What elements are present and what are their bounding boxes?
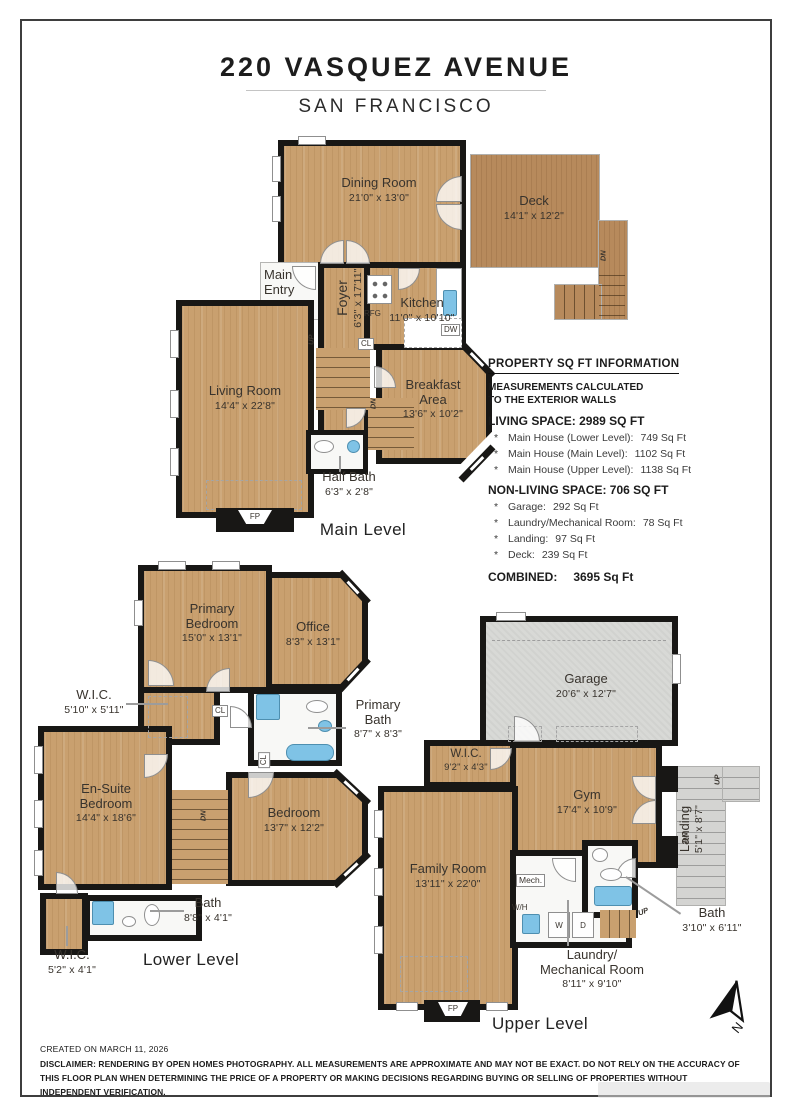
page-subtitle: SAN FRANCISCO: [0, 96, 792, 118]
window: [158, 561, 186, 570]
sink-icon: [122, 916, 136, 927]
bullet: *: [494, 501, 501, 513]
breakfast-label: Breakfast Area 13'6" x 10'2": [392, 378, 474, 421]
page-title: 220 VASQUEZ AVENUE: [0, 52, 792, 83]
deck-stairs-treads: [599, 266, 625, 316]
room-wic-2: [40, 893, 88, 955]
stairs-dn-tag: DN: [682, 832, 690, 843]
sqft-item: *Main House (Lower Level):749 Sq Ft: [488, 432, 766, 444]
item-label: Garage:: [508, 501, 546, 513]
laundry-sink-icon: [522, 914, 540, 934]
item-label: Laundry/Mechanical Room:: [508, 517, 636, 529]
label-leader: [126, 703, 168, 705]
refrigerator-tag: RFG: [364, 310, 381, 318]
window: [396, 1002, 418, 1011]
window: [486, 1002, 508, 1011]
closet-tag: CL: [358, 338, 374, 350]
garage-door-line: [492, 640, 666, 641]
dining-label: Dining Room 21'0" x 13'0": [340, 176, 418, 204]
sqft-item: *Deck:239 Sq Ft: [488, 549, 766, 561]
window: [170, 330, 179, 358]
deck-label: Deck 14'1" x 12'2": [494, 194, 574, 222]
main-entry-label: Main Entry: [258, 268, 316, 297]
sqft-note-2: TO THE EXTERIOR WALLS: [488, 394, 766, 407]
item-value: 78 Sq Ft: [643, 517, 683, 529]
water-heater-tag: W/H: [512, 904, 528, 912]
window: [496, 612, 526, 621]
item-label: Main House (Main Level):: [508, 448, 628, 460]
item-value: 749 Sq Ft: [640, 432, 686, 444]
halfbath-label: Half Bath 6'3" x 2'8": [299, 470, 399, 498]
bullet: *: [494, 549, 501, 561]
garage-outline: [556, 726, 638, 742]
watermark: [598, 1082, 770, 1098]
window: [34, 850, 43, 876]
stairs-dn-tag: DN: [200, 810, 208, 821]
shower-icon: [256, 694, 280, 720]
deck-stairs: [554, 284, 602, 320]
item-label: Deck:: [508, 549, 535, 561]
window: [170, 390, 179, 418]
nonliving-space-title: NON-LIVING SPACE: 706 SQ FT: [488, 483, 766, 497]
rug-outline: [400, 956, 468, 992]
window: [34, 746, 43, 774]
bullet: *: [494, 517, 501, 529]
stairs-lower: [172, 790, 228, 884]
bullet: *: [494, 464, 501, 476]
living-label: Living Room 14'4" x 22'8": [196, 384, 294, 412]
closet-tag: CL: [258, 752, 270, 768]
ensuite-label: En-Suite Bedroom 14'4" x 18'6": [58, 782, 154, 825]
wic3-label: W.I.C. 9'2" x 4'3": [432, 748, 500, 774]
window: [672, 654, 681, 684]
sink-icon: [318, 720, 332, 732]
sqft-header: PROPERTY SQ FT INFORMATION: [488, 358, 679, 374]
living-space-title: LIVING SPACE: 2989 SQ FT: [488, 414, 766, 428]
window: [374, 868, 383, 896]
sqft-item: *Laundry/Mechanical Room:78 Sq Ft: [488, 517, 766, 529]
item-value: 292 Sq Ft: [553, 501, 599, 513]
sqft-item: *Main House (Upper Level):1138 Sq Ft: [488, 464, 766, 476]
stairs-main-up: [316, 348, 370, 410]
primary-bedroom-label: Primary Bedroom 15'0" x 13'1": [166, 602, 258, 645]
item-label: Landing:: [508, 533, 548, 545]
label-leader: [66, 926, 68, 946]
gym-label: Gym 17'4" x 10'9": [548, 788, 626, 816]
item-label: Main House (Lower Level):: [508, 432, 633, 444]
mechanical-tag: Mech.: [516, 874, 545, 887]
created-date: CREATED ON MARCH 11, 2026: [40, 1044, 168, 1054]
sqft-info-panel: PROPERTY SQ FT INFORMATION MEASUREMENTS …: [488, 354, 766, 584]
window: [298, 136, 326, 145]
sqft-item: *Landing:97 Sq Ft: [488, 533, 766, 545]
bullet: *: [494, 432, 501, 444]
closet-tag: CL: [212, 705, 228, 717]
toilet-icon: [306, 700, 328, 713]
upper-level-caption: Upper Level: [460, 1014, 620, 1034]
lower-level-caption: Lower Level: [111, 950, 271, 970]
window: [374, 810, 383, 838]
wic1-label: W.I.C. 5'10" x 5'11": [52, 688, 136, 716]
bath-lower-label: Bath 8'8" x 4'1": [178, 896, 238, 924]
title-divider: [246, 90, 546, 91]
deck-dn-tag: DN: [600, 250, 608, 261]
shower-icon: [594, 886, 632, 906]
sqft-item: *Garage:292 Sq Ft: [488, 501, 766, 513]
item-value: 97 Sq Ft: [555, 533, 595, 545]
toilet-icon: [144, 904, 160, 926]
office-label: Office 8'3" x 13'1": [282, 620, 344, 648]
north-compass-icon: N: [698, 976, 762, 1042]
garage-label: Garage 20'6" x 12'7": [540, 672, 632, 700]
sink-icon: [347, 440, 360, 453]
foyer-label: Foyer 6'3" x 17'11": [330, 243, 370, 353]
window: [272, 156, 281, 182]
item-value: 1102 Sq Ft: [635, 448, 686, 460]
primary-bath-label: Primary Bath 8'7" x 8'3": [344, 698, 412, 741]
laundry-label: Laundry/ Mechanical Room 8'11" x 9'10": [512, 948, 672, 991]
combined-total: COMBINED:3695 Sq Ft: [488, 570, 766, 584]
toilet-icon: [600, 868, 622, 881]
dishwasher-tag: DW: [441, 324, 460, 336]
landing-label: Landing 5'1" x 8'7": [675, 774, 709, 884]
shower-icon: [92, 901, 114, 925]
toilet-icon: [314, 440, 334, 453]
label-leader: [308, 727, 346, 729]
item-label: Main House (Upper Level):: [508, 464, 633, 476]
bathtub-icon: [286, 744, 334, 761]
bullet: *: [494, 448, 501, 460]
stairs-up-tag: UP: [713, 775, 721, 785]
rug-outline: [206, 480, 302, 510]
window: [374, 926, 383, 954]
wic2-label: W.I.C. 5'2" x 4'1": [34, 948, 110, 976]
sink-icon: [592, 848, 608, 862]
bedroom-label: Bedroom 13'7" x 12'2": [258, 806, 330, 834]
window: [134, 600, 143, 626]
dryer-icon: D: [572, 912, 594, 938]
window: [272, 196, 281, 222]
bullet: *: [494, 533, 501, 545]
stairs-dn-tag: DN: [370, 398, 378, 409]
sqft-note-1: MEASUREMENTS CALCULATED: [488, 381, 766, 394]
main-level-caption: Main Level: [283, 520, 443, 540]
kitchen-label: Kitchen 11'0" x 10'10": [386, 296, 458, 324]
label-leader: [567, 900, 569, 946]
item-value: 239 Sq Ft: [542, 549, 588, 561]
sqft-item: *Main House (Main Level):1102 Sq Ft: [488, 448, 766, 460]
window: [212, 561, 240, 570]
landing-stairs-ext: [722, 766, 760, 802]
floor-plan-page: 220 VASQUEZ AVENUE SAN FRANCISCO Deck 14…: [0, 0, 792, 1120]
room-halfbath: [306, 430, 368, 474]
stairs-up-tag: UP: [307, 335, 315, 345]
window: [170, 448, 179, 476]
family-label: Family Room 13'11" x 22'0": [400, 862, 496, 890]
bath-upper-label: Bath 3'10" x 6'11": [672, 906, 752, 934]
item-value: 1138 Sq Ft: [640, 464, 691, 476]
window: [34, 800, 43, 828]
stairs-upper-small: [600, 910, 636, 938]
